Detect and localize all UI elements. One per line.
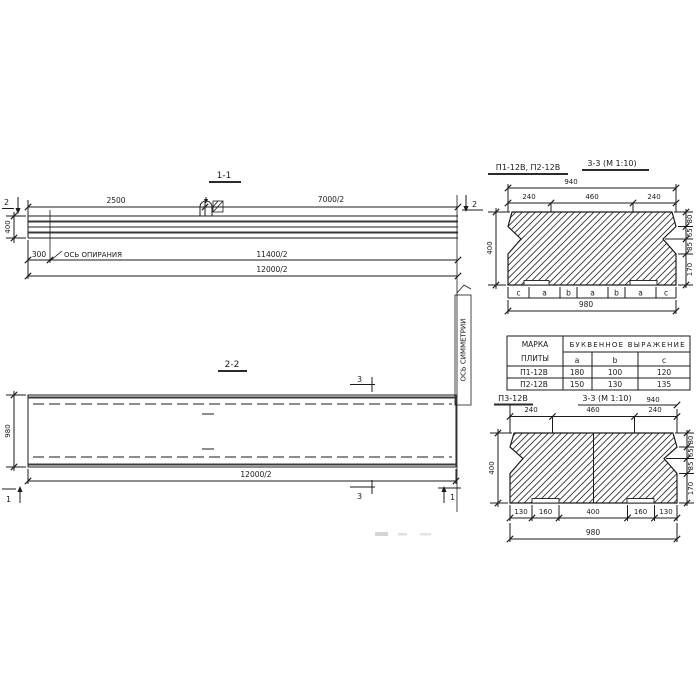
svg-text:170: 170 [687, 482, 695, 495]
dim-height-1-1: 400 [4, 212, 26, 243]
title-3-3-bottom: 3-3 (М 1:10) [582, 394, 631, 403]
svg-text:170: 170 [686, 263, 694, 276]
svg-text:2: 2 [4, 198, 9, 207]
table-header-marka: МАРКА [522, 340, 549, 349]
svg-text:400: 400 [586, 508, 599, 516]
table-col-b: b [613, 356, 618, 365]
svg-text:80: 80 [686, 215, 694, 224]
svg-text:65: 65 [687, 448, 695, 457]
svg-text:b: b [614, 289, 619, 298]
dim-height-2-2: 980 [4, 391, 26, 471]
section-1-1-title: 1-1 [217, 171, 232, 181]
svg-text:1: 1 [450, 493, 455, 502]
support-axis-and-dims: 300 ОСЬ ОПИРАНИЯ 11400/2 12000/2 [25, 210, 461, 279]
svg-text:П1-12В: П1-12В [520, 368, 548, 377]
support-axis-label: ОСЬ ОПИРАНИЯ [64, 251, 122, 259]
letters-row: c a b a b a c [508, 287, 676, 298]
dim-12000-2-top: 12000/2 [256, 265, 287, 274]
svg-text:80: 80 [687, 436, 695, 445]
marks-table: МАРКА ПЛИТЫ БУКВЕННОЕ ВЫРАЖЕНИЕ a b c П1… [507, 336, 690, 390]
cut-mark-1-left: 1 [2, 486, 23, 504]
svg-text:160: 160 [634, 508, 647, 516]
svg-text:3: 3 [357, 375, 362, 384]
section-3-3-top: П1-12В, П2-12В 3-3 (М 1:10) 940 240 460 … [486, 159, 694, 314]
svg-text:135: 135 [657, 380, 672, 389]
dim-bottom-total: 980 [507, 523, 680, 542]
svg-text:240: 240 [647, 193, 660, 201]
bottom-recess-left [524, 281, 549, 286]
dim-height-top-section: 400 [486, 208, 510, 289]
faint-print-artifact [375, 532, 431, 536]
svg-text:1: 1 [6, 495, 11, 504]
dim-400: 400 [4, 220, 12, 233]
svg-text:3: 3 [357, 492, 362, 501]
dim-300: 300 [32, 250, 47, 259]
svg-text:460: 460 [585, 193, 598, 201]
svg-text:240: 240 [648, 406, 661, 414]
slab-elevation [28, 216, 458, 238]
svg-text:180: 180 [570, 368, 585, 377]
svg-text:a: a [638, 289, 643, 298]
svg-text:130: 130 [659, 508, 672, 516]
title-3-3-top: 3-3 (М 1:10) [587, 159, 636, 168]
svg-text:a: a [590, 289, 595, 298]
table-header-group: БУКВЕННОЕ ВЫРАЖЕНИЕ [570, 341, 685, 349]
label-p1-p2: П1-12В, П2-12В [496, 163, 560, 172]
table-row: П1-12В 180 100 120 [520, 368, 671, 377]
dim-bottom-2-2: 12000/2 [25, 469, 459, 484]
section-3-3-bottom: П3-12В 3-3 (М 1:10) 940 240 460 240 [488, 394, 695, 542]
bottom-recess-right [627, 499, 654, 504]
slab-plan [28, 395, 456, 467]
svg-text:a: a [542, 289, 547, 298]
table-header-plity: ПЛИТЫ [521, 354, 549, 363]
symmetry-axis: ОСЬ СИММЕТРИИ [455, 195, 471, 512]
svg-text:980: 980 [586, 528, 601, 537]
cut-mark-2-right: 2 [462, 195, 483, 212]
svg-text:c: c [664, 289, 668, 298]
cut-mark-1-right: 1 [438, 486, 461, 503]
dim-12000-2-plan: 12000/2 [240, 470, 271, 479]
dims-top: 940 240 460 240 [505, 178, 679, 212]
cut-mark-3-top: 3 [350, 375, 375, 392]
dim-11400-2: 11400/2 [256, 250, 287, 259]
blueprint-sheet: 1-1 2 2 2500 7000/2 [0, 0, 700, 700]
svg-text:240: 240 [522, 193, 535, 201]
dim-7000-2: 7000/2 [318, 195, 345, 204]
svg-text:130: 130 [514, 508, 527, 516]
dim-2500: 2500 [106, 196, 125, 205]
drawing-svg: 1-1 2 2 2500 7000/2 [0, 0, 700, 700]
table-col-c: c [662, 356, 666, 365]
svg-text:100: 100 [608, 368, 623, 377]
svg-text:65: 65 [686, 228, 694, 237]
svg-text:160: 160 [539, 508, 552, 516]
svg-text:940: 940 [564, 178, 577, 186]
section-2-2-title: 2-2 [225, 360, 240, 370]
symmetry-axis-label: ОСЬ СИММЕТРИИ [460, 318, 468, 381]
bottom-recess-left [532, 499, 559, 504]
svg-text:85: 85 [686, 242, 694, 251]
cut-mark-2-left: 2 [2, 197, 21, 214]
bottom-recess-right [630, 281, 657, 286]
section-2-2: 2-2 3 980 [2, 360, 461, 504]
svg-text:120: 120 [657, 368, 672, 377]
table-row: П2-12В 150 130 135 [520, 380, 671, 389]
svg-text:П2-12В: П2-12В [520, 380, 548, 389]
svg-text:400: 400 [486, 241, 494, 254]
svg-text:2: 2 [472, 200, 477, 209]
svg-text:240: 240 [524, 406, 537, 414]
svg-text:85: 85 [687, 462, 695, 471]
cut-mark-3-bottom: 3 [350, 480, 375, 501]
svg-text:460: 460 [586, 406, 599, 414]
dims-top-bottom-section: 240 460 240 [507, 405, 680, 433]
dim-height-bottom-section: 400 [488, 429, 512, 507]
svg-text:980: 980 [579, 300, 594, 309]
table-col-a: a [575, 356, 580, 365]
cross-section-body-top [508, 212, 676, 285]
svg-text:130: 130 [608, 380, 623, 389]
svg-text:c: c [516, 289, 520, 298]
dim-top-1-1: 2500 7000/2 [25, 195, 461, 216]
svg-text:b: b [566, 289, 571, 298]
dim-bottom-top-section: 980 [505, 300, 679, 314]
svg-text:400: 400 [488, 461, 496, 474]
label-p3: П3-12В [498, 394, 528, 403]
dims-bottom-bottom-section: 130 160 400 160 130 [507, 505, 680, 521]
dim-980-plan: 980 [4, 424, 12, 437]
svg-text:150: 150 [570, 380, 585, 389]
section-1-1: 1-1 2 2 2500 7000/2 [2, 171, 483, 279]
dim-940-bottom-section: 940 [646, 396, 659, 404]
